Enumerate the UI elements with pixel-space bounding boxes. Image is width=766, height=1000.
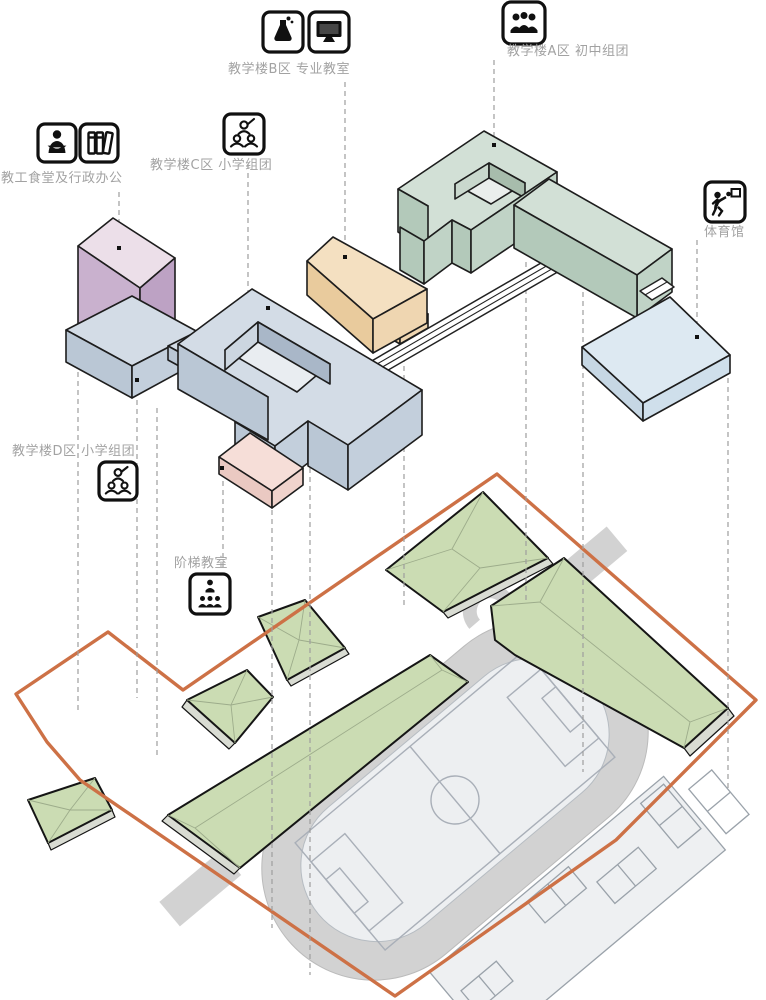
site-plan (16, 474, 766, 1000)
lecture-icon (190, 574, 230, 614)
flask-icon (263, 12, 303, 52)
footprint-3 (187, 670, 273, 743)
people-group-icon (503, 2, 545, 44)
label-building-c: 教学楼C区 小学组团 (150, 157, 272, 173)
label-lecture-hall: 阶梯教室 (174, 555, 228, 571)
label-building-a: 教学楼A区 初中组团 (507, 43, 629, 59)
archive-icon (80, 124, 118, 162)
classroom-icon (99, 462, 137, 500)
label-canteen-admin: 教工食堂及行政办公 (1, 170, 123, 186)
label-building-b: 教学楼B区 专业教室 (228, 61, 350, 77)
label-building-d: 教学楼D区 小学组团 (12, 443, 135, 459)
campus-axonometric-diagram: 教学楼B区 专业教室 教学楼A区 初中组团 教工食堂及行政办公 教学楼C区 小学… (0, 0, 766, 1000)
diagram-canvas: 教学楼B区 专业教室 教学楼A区 初中组团 教工食堂及行政办公 教学楼C区 小学… (0, 0, 766, 1000)
label-gym: 体育馆 (704, 224, 745, 240)
basketball-icon (705, 182, 745, 222)
gym-block (582, 297, 730, 421)
dining-icon (38, 124, 76, 162)
monitor-icon (309, 12, 349, 52)
classroom-icon (224, 114, 264, 154)
